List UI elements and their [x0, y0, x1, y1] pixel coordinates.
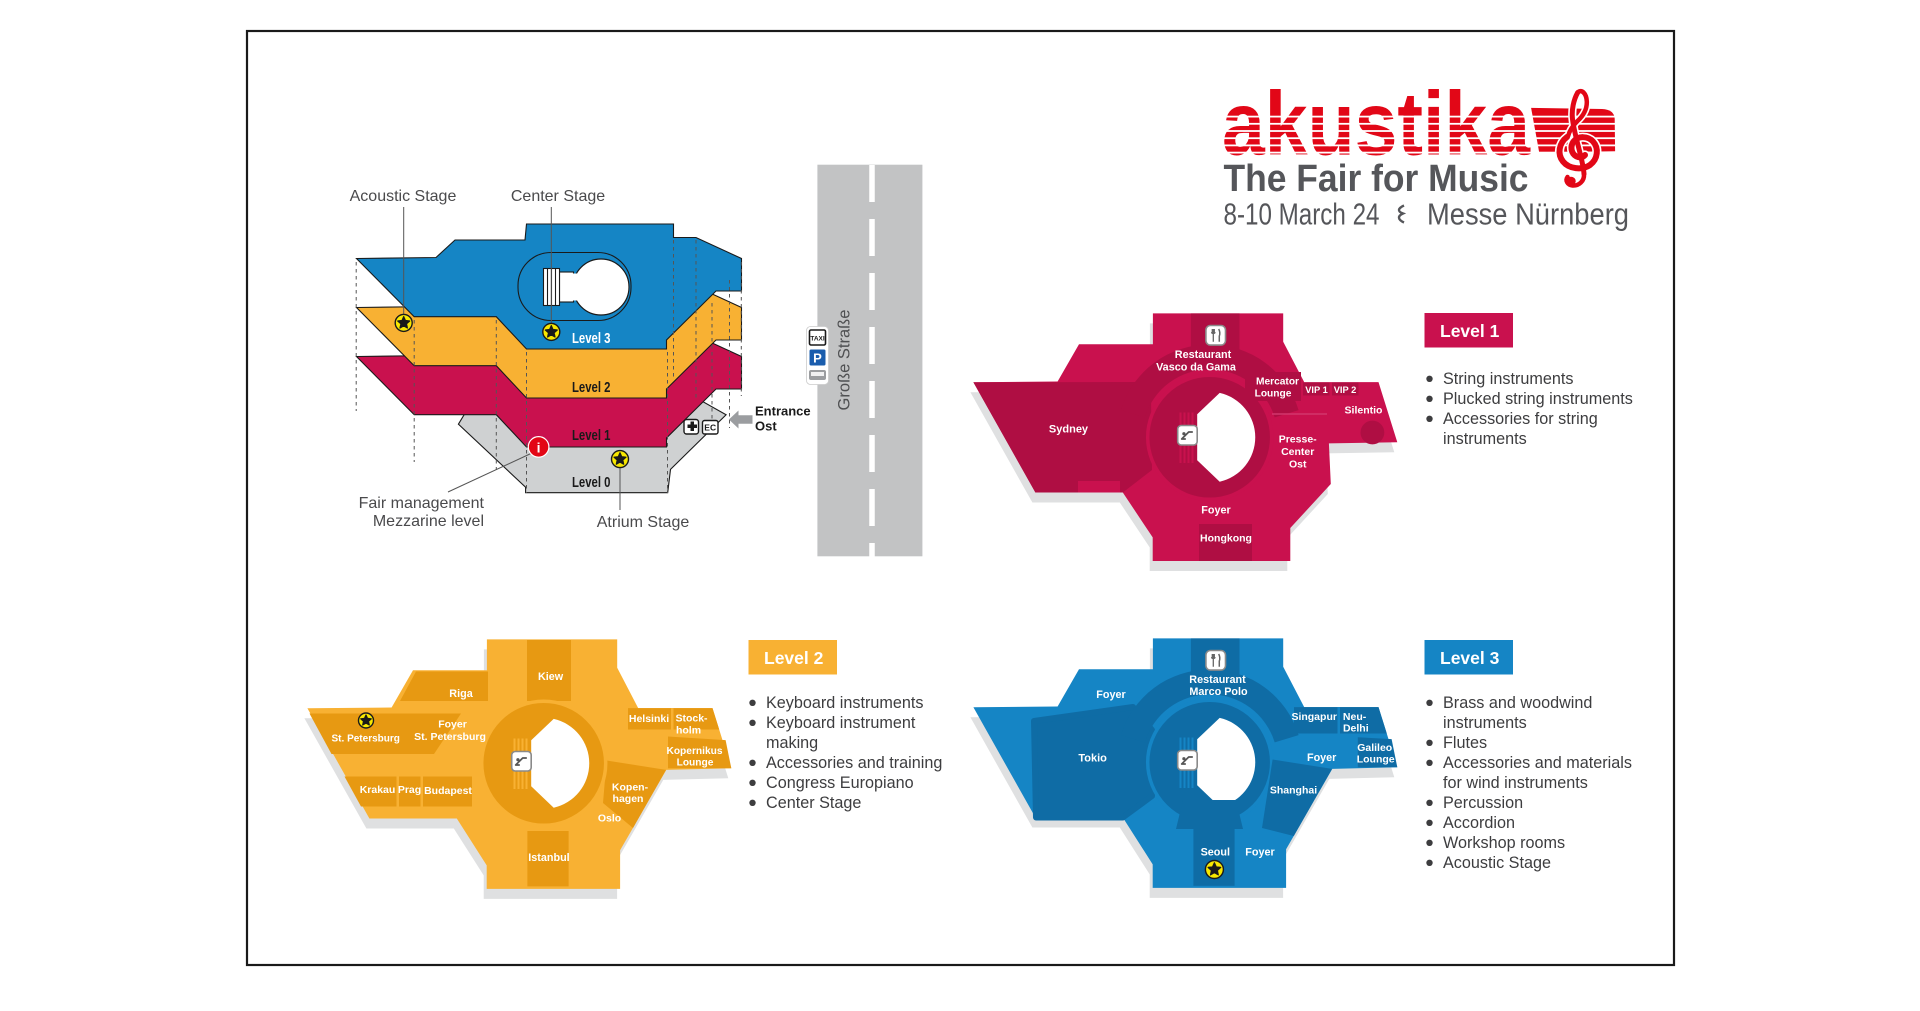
svg-text:hagen: hagen [613, 793, 644, 805]
svg-text:Foyer: Foyer [1307, 752, 1337, 764]
svg-text:Center: Center [1281, 446, 1314, 458]
svg-text:Ost: Ost [755, 419, 777, 434]
svg-text:St. Petersburg: St. Petersburg [414, 731, 486, 743]
svg-text:St. Petersburg: St. Petersburg [332, 734, 400, 745]
svg-text:Presse-: Presse- [1279, 434, 1317, 446]
svg-text:Flutes: Flutes [1443, 734, 1487, 752]
svg-text:Brass and woodwind: Brass and woodwind [1443, 694, 1592, 712]
svg-text:Silentio: Silentio [1345, 405, 1383, 417]
svg-text:Shanghai: Shanghai [1270, 785, 1317, 797]
svg-text:String instruments: String instruments [1443, 370, 1573, 388]
svg-text:Mezzarine level: Mezzarine level [373, 513, 484, 530]
svg-text:Delhi: Delhi [1343, 723, 1369, 735]
svg-text:Stock-: Stock- [675, 713, 708, 725]
svg-text:Prag: Prag [398, 784, 421, 796]
svg-text:i: i [537, 440, 541, 456]
svg-text:Messe Nürnberg: Messe Nürnberg [1427, 197, 1629, 232]
svg-text:Mercator: Mercator [1256, 377, 1299, 388]
svg-text:Restaurant: Restaurant [1175, 349, 1232, 361]
svg-text:TAXI: TAXI [810, 336, 825, 343]
svg-text:Level 1: Level 1 [1440, 321, 1500, 341]
svg-text:Level 3: Level 3 [1440, 648, 1500, 668]
svg-text:Fair management: Fair management [359, 495, 485, 512]
svg-text:for wind instruments: for wind instruments [1443, 774, 1588, 792]
svg-text:Neu-: Neu- [1343, 711, 1367, 723]
svg-text:VIP 1: VIP 1 [1305, 385, 1328, 395]
svg-text:Lounge: Lounge [1255, 389, 1292, 400]
svg-text:instruments: instruments [1443, 714, 1527, 732]
svg-text:Entrance: Entrance [755, 404, 811, 419]
svg-text:Plucked string instruments: Plucked string instruments [1443, 390, 1633, 408]
svg-text:Accessories and training: Accessories and training [766, 754, 942, 772]
svg-text:P: P [813, 351, 822, 366]
svg-text:Level 1: Level 1 [572, 427, 611, 444]
svg-text:Tokio: Tokio [1078, 753, 1107, 765]
svg-text:Accordion: Accordion [1443, 814, 1515, 832]
svg-text:Sydney: Sydney [1049, 424, 1089, 436]
svg-text:Accessories for string: Accessories for string [1443, 410, 1598, 428]
svg-text:Foyer: Foyer [1201, 505, 1231, 517]
svg-text:Große Straße: Große Straße [836, 310, 854, 411]
svg-text:Keyboard instrument: Keyboard instrument [766, 714, 916, 732]
svg-text:Vasco da Gama: Vasco da Gama [1156, 362, 1237, 374]
svg-text:Foyer: Foyer [1096, 689, 1126, 701]
svg-text:The Fair for Music: The Fair for Music [1224, 158, 1529, 200]
svg-text:Kopernikus: Kopernikus [666, 746, 722, 757]
svg-text:Restaurant: Restaurant [1189, 674, 1246, 686]
svg-text:Marco Polo: Marco Polo [1189, 686, 1248, 698]
svg-text:Percussion: Percussion [1443, 794, 1523, 812]
svg-text:Workshop rooms: Workshop rooms [1443, 834, 1565, 852]
svg-text:VIP 2: VIP 2 [1334, 385, 1357, 395]
svg-text:8-10 March 24: 8-10 March 24 [1224, 197, 1380, 232]
svg-text:Congress Europiano: Congress Europiano [766, 774, 914, 792]
svg-text:Foyer: Foyer [438, 719, 467, 731]
svg-text:Riga: Riga [449, 688, 473, 700]
svg-text:Singapur: Singapur [1291, 711, 1337, 723]
svg-text:Oslo: Oslo [598, 813, 621, 825]
svg-text:Foyer: Foyer [1245, 847, 1275, 859]
svg-text:Acoustic Stage: Acoustic Stage [350, 188, 457, 205]
svg-text:Center Stage: Center Stage [766, 794, 861, 812]
svg-text:Helsinki: Helsinki [629, 713, 669, 725]
svg-text:Galileo: Galileo [1357, 742, 1392, 754]
svg-text:Level 2: Level 2 [764, 648, 824, 668]
svg-text:Level 0: Level 0 [572, 474, 611, 491]
svg-text:Seoul: Seoul [1201, 847, 1230, 859]
svg-text:Budapest: Budapest [424, 785, 472, 797]
svg-text:Lounge: Lounge [1357, 754, 1395, 766]
svg-text:Level 3: Level 3 [572, 330, 611, 347]
svg-text:Ost: Ost [1289, 459, 1307, 471]
svg-text:Center Stage: Center Stage [511, 188, 605, 205]
svg-text:Krakau: Krakau [360, 784, 396, 796]
svg-text:Level 2: Level 2 [572, 379, 611, 396]
svg-text:holm: holm [676, 725, 701, 737]
svg-text:Kopen-: Kopen- [612, 782, 649, 794]
svg-text:Lounge: Lounge [677, 758, 714, 769]
svg-text:EC: EC [704, 423, 716, 433]
svg-text:Atrium Stage: Atrium Stage [597, 514, 690, 531]
svg-text:Kiew: Kiew [538, 671, 564, 683]
svg-text:instruments: instruments [1443, 430, 1527, 448]
svg-text:Hongkong: Hongkong [1200, 533, 1252, 545]
svg-text:Istanbul: Istanbul [528, 852, 569, 864]
svg-text:making: making [766, 734, 818, 752]
svg-text:Acoustic Stage: Acoustic Stage [1443, 854, 1551, 872]
svg-text:Accessories and materials: Accessories and materials [1443, 754, 1632, 772]
svg-text:Keyboard instruments: Keyboard instruments [766, 694, 923, 712]
